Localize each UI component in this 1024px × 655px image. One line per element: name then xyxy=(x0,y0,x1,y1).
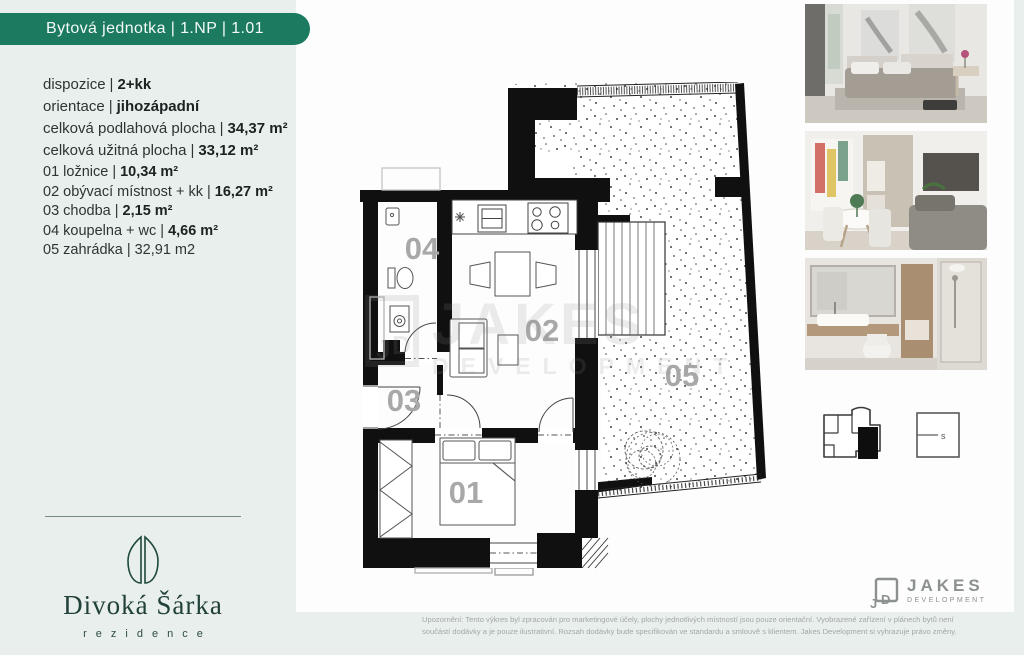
page-title-banner: Bytová jednotka | 1.NP | 1.01 xyxy=(0,13,310,45)
dining-set xyxy=(470,252,556,296)
brand-name: Divoká Šárka xyxy=(10,590,276,621)
site-key-plan: s xyxy=(915,411,961,459)
floor-plan: 01 02 03 04 05 J D JAKES DEVELOPMENT xyxy=(352,82,772,610)
disclaimer-line-2: součástí dodávky a je pouze ilustrativní… xyxy=(422,626,1012,638)
room-line: 05 zahrádka|32,91 m2 xyxy=(43,241,273,261)
page-title: Bytová jednotka | 1.NP | 1.01 xyxy=(46,20,264,38)
unit-location-marker xyxy=(858,427,878,459)
svg-text:DEVELOPMENT: DEVELOPMENT xyxy=(432,353,739,379)
room-line: 02 obývací místnost + kk|16,27 m² xyxy=(43,183,273,203)
spec-line: dispozice|2+kk xyxy=(43,74,288,96)
corner-hatch xyxy=(582,538,608,568)
svg-text:J: J xyxy=(376,334,390,364)
photo-living-room xyxy=(805,131,987,250)
room-line: 04 koupelna + wc|4,66 m² xyxy=(43,222,273,242)
bedroom-furniture xyxy=(380,438,515,538)
svg-text:D: D xyxy=(881,592,890,607)
room-line: 01 ložnice|10,34 m² xyxy=(43,163,273,183)
room-label-04: 04 xyxy=(405,231,440,266)
building-key-plan xyxy=(818,403,894,461)
room-label-01: 01 xyxy=(449,475,483,510)
room-list: 01 ložnice|10,34 m² 02 obývací místnost … xyxy=(43,163,273,261)
disclaimer: Upozornění: Tento výkres byl zpracován p… xyxy=(422,614,1012,637)
developer-logo: J D JAKES DEVELOPMENT xyxy=(869,577,986,610)
developer-name: JAKES xyxy=(907,577,986,594)
developer-subtitle: DEVELOPMENT xyxy=(907,597,986,604)
bathroom-fixtures xyxy=(386,208,413,332)
site-label: s xyxy=(941,431,946,441)
unit-specs: dispozice|2+kk orientace|jihozápadní cel… xyxy=(43,74,288,162)
room-label-03: 03 xyxy=(387,383,421,418)
photo-bathroom xyxy=(805,258,987,370)
tulip-logo-icon xyxy=(120,534,166,588)
jd-monogram-icon: J D xyxy=(869,577,899,610)
spec-line: orientace|jihozápadní xyxy=(43,96,288,118)
brand-divider xyxy=(45,516,241,517)
spec-line: celková podlahová plocha|34,37 m² xyxy=(43,118,288,140)
svg-text:J: J xyxy=(870,596,877,610)
svg-text:JAKES: JAKES xyxy=(432,292,645,357)
spec-line: celková užitná plocha|33,12 m² xyxy=(43,140,288,162)
brand-subtitle: rezidence xyxy=(10,628,276,640)
kitchen-counter xyxy=(452,200,577,234)
photo-bedroom xyxy=(805,4,987,123)
svg-text:D: D xyxy=(392,330,411,360)
disclaimer-line-1: Upozornění: Tento výkres byl zpracován p… xyxy=(422,614,1012,626)
wall-notch xyxy=(535,152,572,178)
room-line: 03 chodba|2,15 m² xyxy=(43,202,273,222)
